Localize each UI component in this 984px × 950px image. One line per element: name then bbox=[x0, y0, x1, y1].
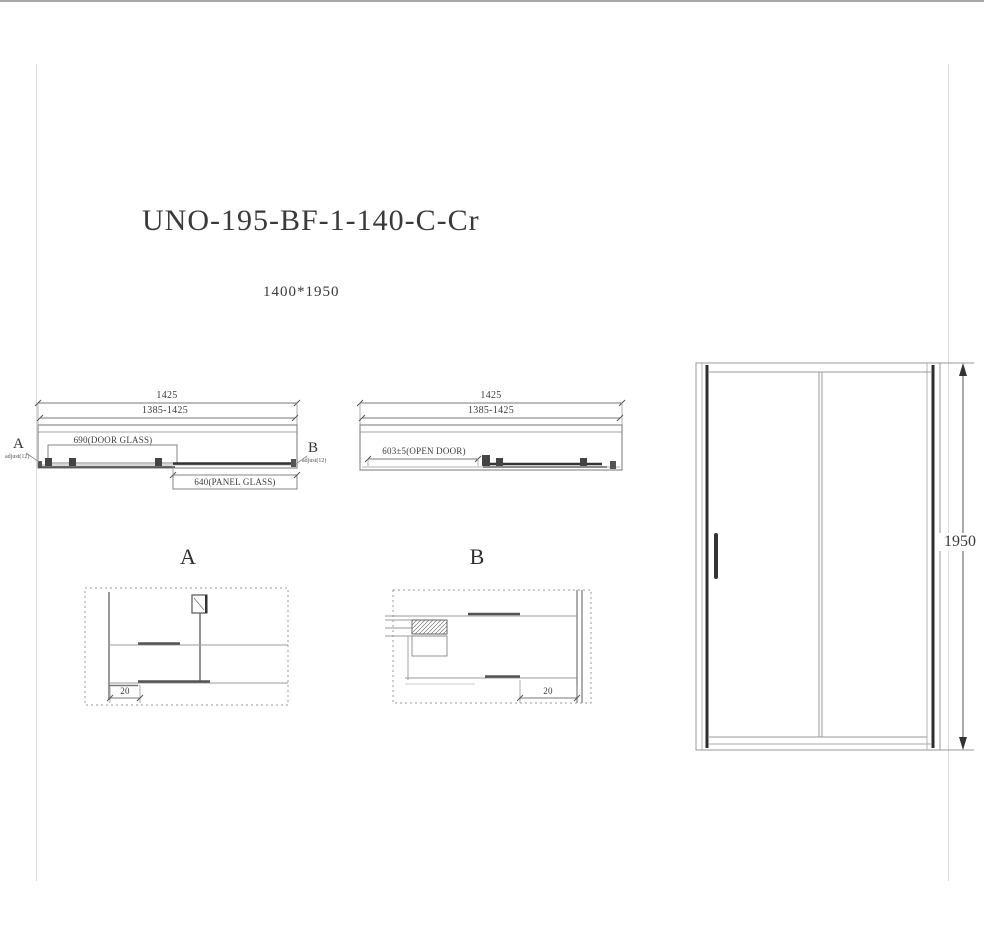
door-stopper bbox=[482, 455, 490, 466]
adjust-note-a: adjust(12) bbox=[5, 454, 29, 460]
dim-1425-closed: 1425 bbox=[135, 390, 199, 401]
roller-clamp bbox=[45, 458, 52, 466]
wall-profile-plan bbox=[38, 425, 297, 468]
door-handle bbox=[714, 533, 718, 579]
roller-clamp bbox=[496, 458, 503, 466]
plan-closed-linework bbox=[5, 385, 335, 507]
end-bracket bbox=[291, 459, 296, 467]
plan-view-closed: 1425 1385-1425 690(DOOR GLASS) 640(PANEL… bbox=[5, 385, 335, 507]
dim-1385-1425-open: 1385-1425 bbox=[441, 405, 541, 416]
wall-profile-section bbox=[412, 620, 447, 634]
elevation-view: 1950 bbox=[690, 355, 984, 760]
sheet-border-bottom bbox=[0, 0, 984, 2]
door-glass-label: 690(DOOR GLASS) bbox=[53, 435, 173, 445]
adjust-note-b: adjust(12) bbox=[302, 458, 326, 464]
section-marker-a: A bbox=[13, 436, 24, 453]
detail-b-linework bbox=[385, 540, 600, 715]
detail-b-dim-20: 20 bbox=[534, 686, 562, 696]
elevation-height-dim: 1950 bbox=[936, 533, 984, 551]
elevation-linework bbox=[690, 355, 984, 760]
dim-1385-1425-closed: 1385-1425 bbox=[115, 405, 215, 416]
roller-clamp bbox=[155, 458, 162, 466]
panel-glass-label: 640(PANEL GLASS) bbox=[173, 477, 297, 487]
plan-view-open: 1425 1385-1425 603±5(OPEN DOOR) bbox=[352, 385, 637, 507]
profile-box bbox=[412, 636, 447, 656]
dim-arrow-down bbox=[959, 737, 967, 750]
detail-a-label: A bbox=[176, 544, 200, 570]
dim-1425-open: 1425 bbox=[459, 390, 523, 401]
detail-b-label: B bbox=[465, 544, 489, 570]
detail-view-b: B bbox=[385, 540, 600, 715]
section-marker-b: B bbox=[308, 440, 318, 457]
roller-clamp bbox=[69, 458, 76, 466]
roller-clamp bbox=[580, 458, 587, 466]
door-frame bbox=[696, 363, 940, 750]
detail-view-a: A 20 bbox=[80, 540, 310, 715]
dim-arrow-up bbox=[959, 363, 967, 376]
open-door-label: 603±5(OPEN DOOR) bbox=[366, 446, 482, 456]
overall-size-label: 1400*1950 bbox=[263, 284, 340, 301]
detail-a-dim-20: 20 bbox=[111, 686, 139, 696]
end-bracket bbox=[610, 461, 616, 469]
model-title: UNO-195-BF-1-140-C-Cr bbox=[142, 204, 480, 238]
drawing-sheet: UNO-195-BF-1-140-C-Cr 1400*1950 bbox=[0, 0, 984, 950]
